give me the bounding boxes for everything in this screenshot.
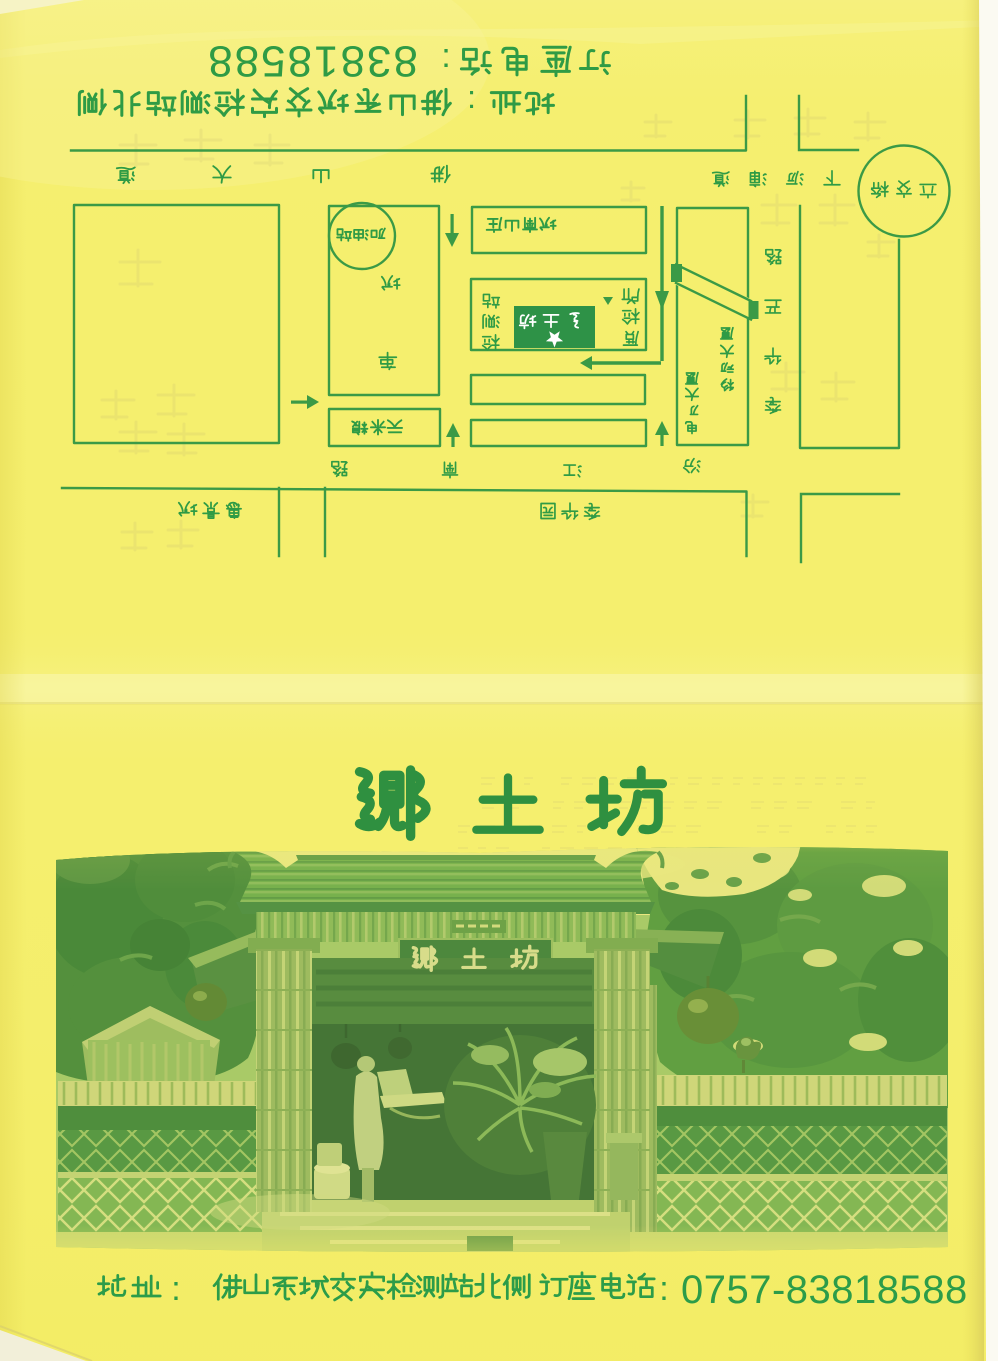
svg-text::: : (441, 41, 450, 79)
svg-text::: : (467, 84, 476, 120)
svg-text:0757-83818588: 0757-83818588 (681, 1268, 968, 1312)
svg-text::: : (171, 1270, 180, 1308)
svg-text:83818588: 83818588 (206, 37, 418, 86)
svg-text::: : (659, 1270, 668, 1308)
